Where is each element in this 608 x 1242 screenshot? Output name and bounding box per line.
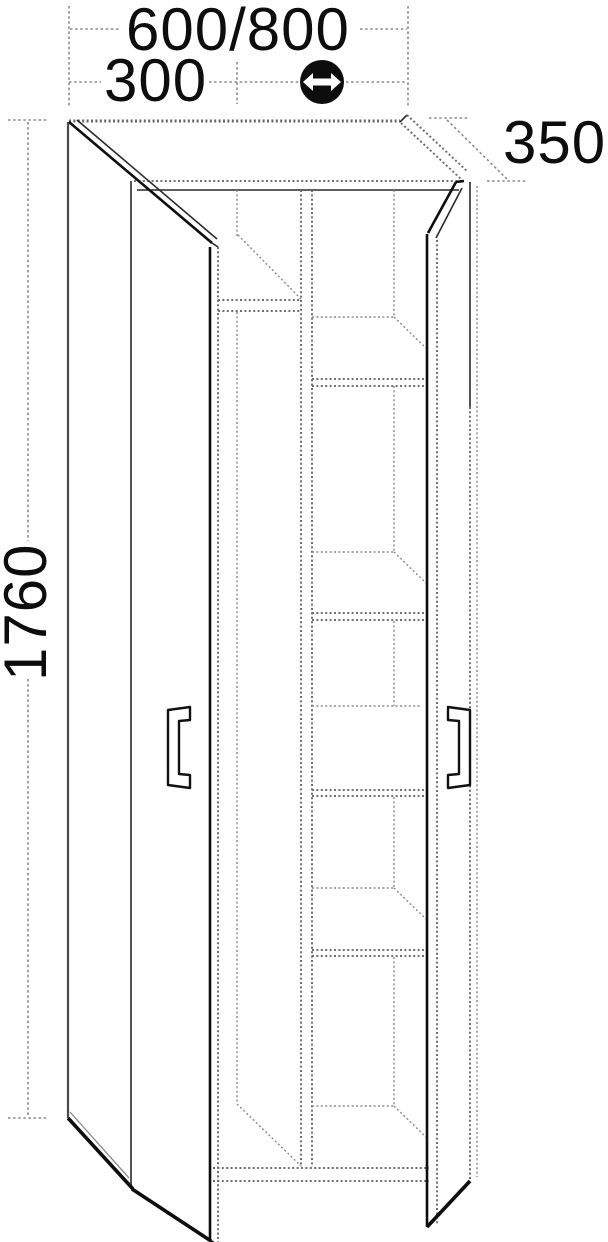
left-door-top-edge: [69, 122, 212, 243]
technical-drawing-page: 600/800 300 350 1760: [0, 0, 608, 1242]
horizontal-double-arrow-icon: [300, 60, 344, 104]
top-right-edge: [407, 115, 468, 172]
left-width-label: 300: [104, 47, 207, 114]
dimension-depth: 350: [429, 109, 606, 181]
cabinet-technical-drawing: 600/800 300 350 1760: [0, 0, 608, 1242]
right-door-bottom-edge: [427, 1181, 470, 1227]
left-door: [69, 120, 218, 1242]
left-door-bottom-edge: [132, 1189, 211, 1241]
cabinet-carcass: [68, 115, 468, 1189]
left-compartment-shelves: [218, 190, 301, 1166]
left-floor-edge: [237, 1104, 301, 1166]
right-door-handle-icon: [448, 707, 470, 788]
height-label: 1760: [0, 544, 59, 681]
right-compartment-shelves: [312, 190, 427, 1138]
dimension-height: 1760: [0, 120, 59, 1118]
left-side-bottom-edge: [68, 1118, 133, 1189]
right-door: [427, 181, 477, 1227]
left-door-handle-icon: [168, 707, 190, 788]
depth-label: 350: [503, 109, 606, 176]
